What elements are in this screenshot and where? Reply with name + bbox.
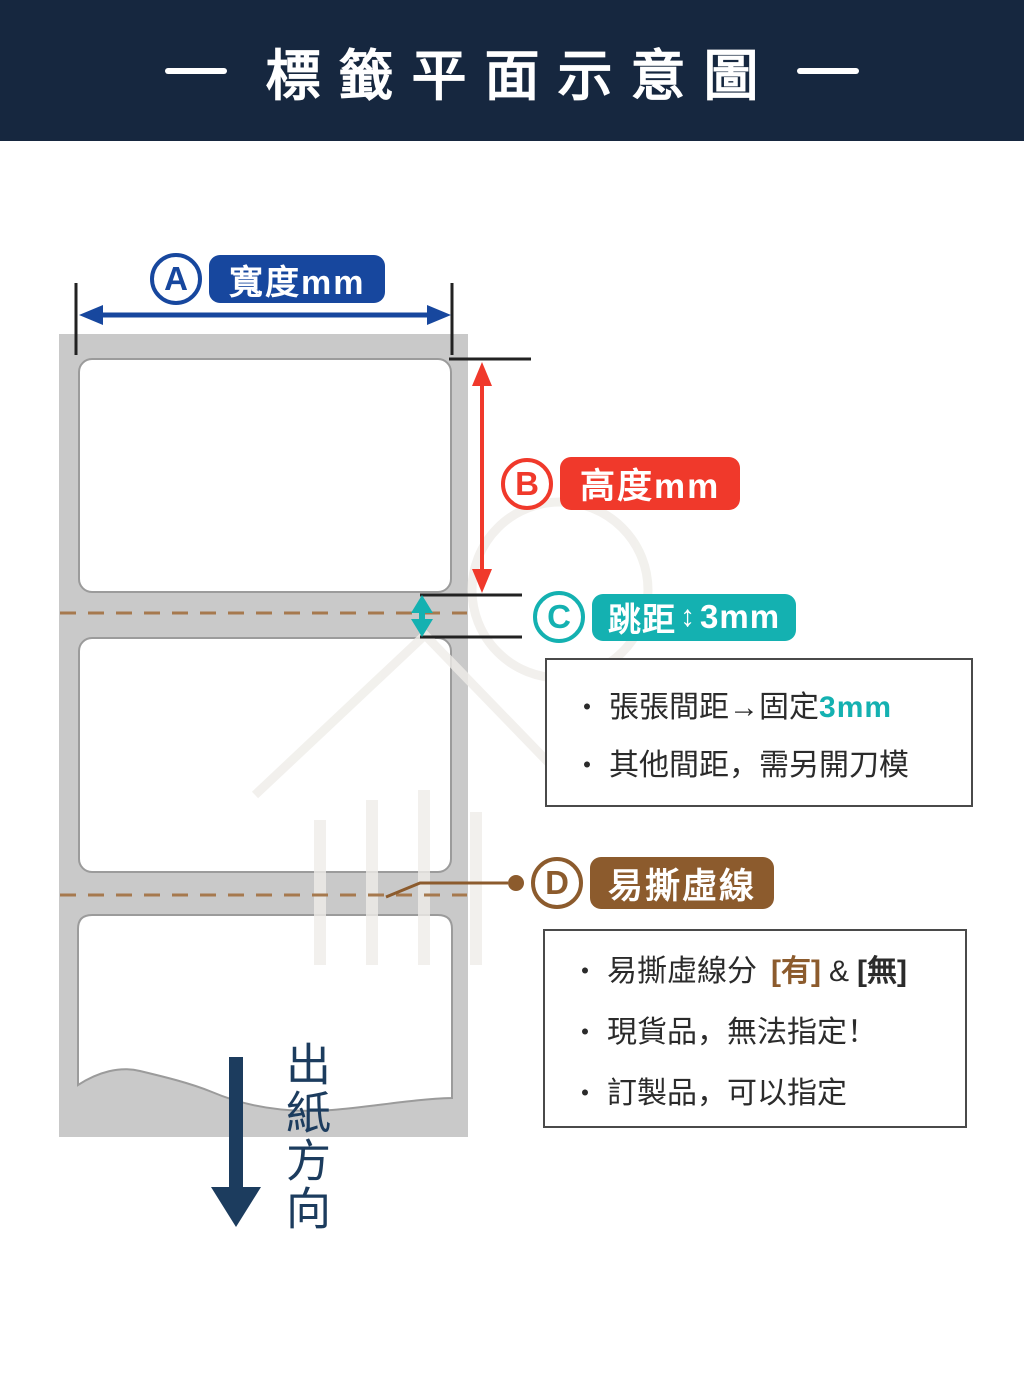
- note-gap-line-1: ・ 張張間距→固定 3mm: [573, 682, 971, 726]
- callout-d-circle: D: [531, 857, 583, 909]
- label-blank-1: [78, 358, 452, 593]
- note-perf-line-2-text: 現貨品，無法指定！: [607, 1007, 877, 1051]
- paper-output-direction-label: 出紙方向: [272, 1041, 337, 1233]
- callout-b: B 高度mm: [501, 457, 740, 510]
- callout-a-letter: A: [164, 260, 188, 298]
- bullet-icon: ・: [573, 744, 601, 784]
- callout-c: C 跳距 ↕ 3mm: [533, 591, 796, 643]
- bullet-icon: ・: [571, 1072, 599, 1112]
- tag-yes: [有]: [771, 946, 821, 990]
- bullet-icon: ・: [571, 950, 599, 990]
- page-title: 標籤平面示意圖: [265, 31, 776, 111]
- bullet-icon: ・: [571, 1011, 599, 1051]
- note-perf-line-1-text: 易撕虛線分: [607, 946, 757, 990]
- tag-no: [無]: [857, 946, 907, 990]
- note-perf-line-3: ・ 訂製品，可以指定: [571, 1068, 965, 1112]
- note-gap-line-2: ・ 其他間距，需另開刀模: [573, 740, 971, 784]
- callout-b-letter: B: [515, 465, 539, 503]
- callout-b-circle: B: [501, 458, 553, 510]
- label-blank-2: [78, 637, 452, 873]
- callout-a-badge: 寬度mm: [209, 255, 385, 303]
- title-dash-right: [797, 68, 859, 74]
- updown-arrow-icon: ↕: [680, 600, 696, 634]
- ampersand: &: [829, 955, 849, 989]
- label-diagram-page: 標籤平面示意圖: [0, 0, 1024, 1398]
- callout-d: D 易撕虛線: [531, 857, 774, 909]
- gap-value-text: 3mm: [700, 598, 780, 636]
- note-gap-line-1-text: 張張間距→固定: [609, 682, 819, 726]
- callout-c-badge: 跳距 ↕ 3mm: [592, 594, 796, 641]
- title-dash-left: [165, 68, 227, 74]
- note-box-perforation: ・ 易撕虛線分 [有] & [無] ・ 現貨品，無法指定！ ・ 訂製品，可以指定: [543, 929, 967, 1128]
- callout-d-letter: D: [545, 864, 569, 902]
- height-arrow: [472, 362, 492, 593]
- callout-d-badge: 易撕虛線: [590, 857, 774, 909]
- callout-b-badge: 高度mm: [560, 457, 740, 510]
- callout-a: A 寬度mm: [150, 253, 385, 305]
- note-box-gap: ・ 張張間距→固定 3mm ・ 其他間距，需另開刀模: [545, 658, 973, 807]
- bullet-icon: ・: [573, 686, 601, 726]
- note-perf-line-2: ・ 現貨品，無法指定！: [571, 1007, 965, 1051]
- note-perf-line-3-text: 訂製品，可以指定: [607, 1068, 847, 1112]
- width-arrow: [79, 305, 451, 325]
- gap-label-text: 跳距: [608, 593, 676, 641]
- note-gap-line-2-text: 其他間距，需另開刀模: [609, 740, 909, 784]
- callout-a-circle: A: [150, 253, 202, 305]
- callout-c-circle: C: [533, 591, 585, 643]
- note-gap-line-1-highlight: 3mm: [819, 691, 892, 725]
- note-perf-line-1: ・ 易撕虛線分 [有] & [無]: [571, 946, 965, 990]
- callout-c-letter: C: [547, 598, 571, 636]
- header-banner: 標籤平面示意圖: [0, 0, 1024, 141]
